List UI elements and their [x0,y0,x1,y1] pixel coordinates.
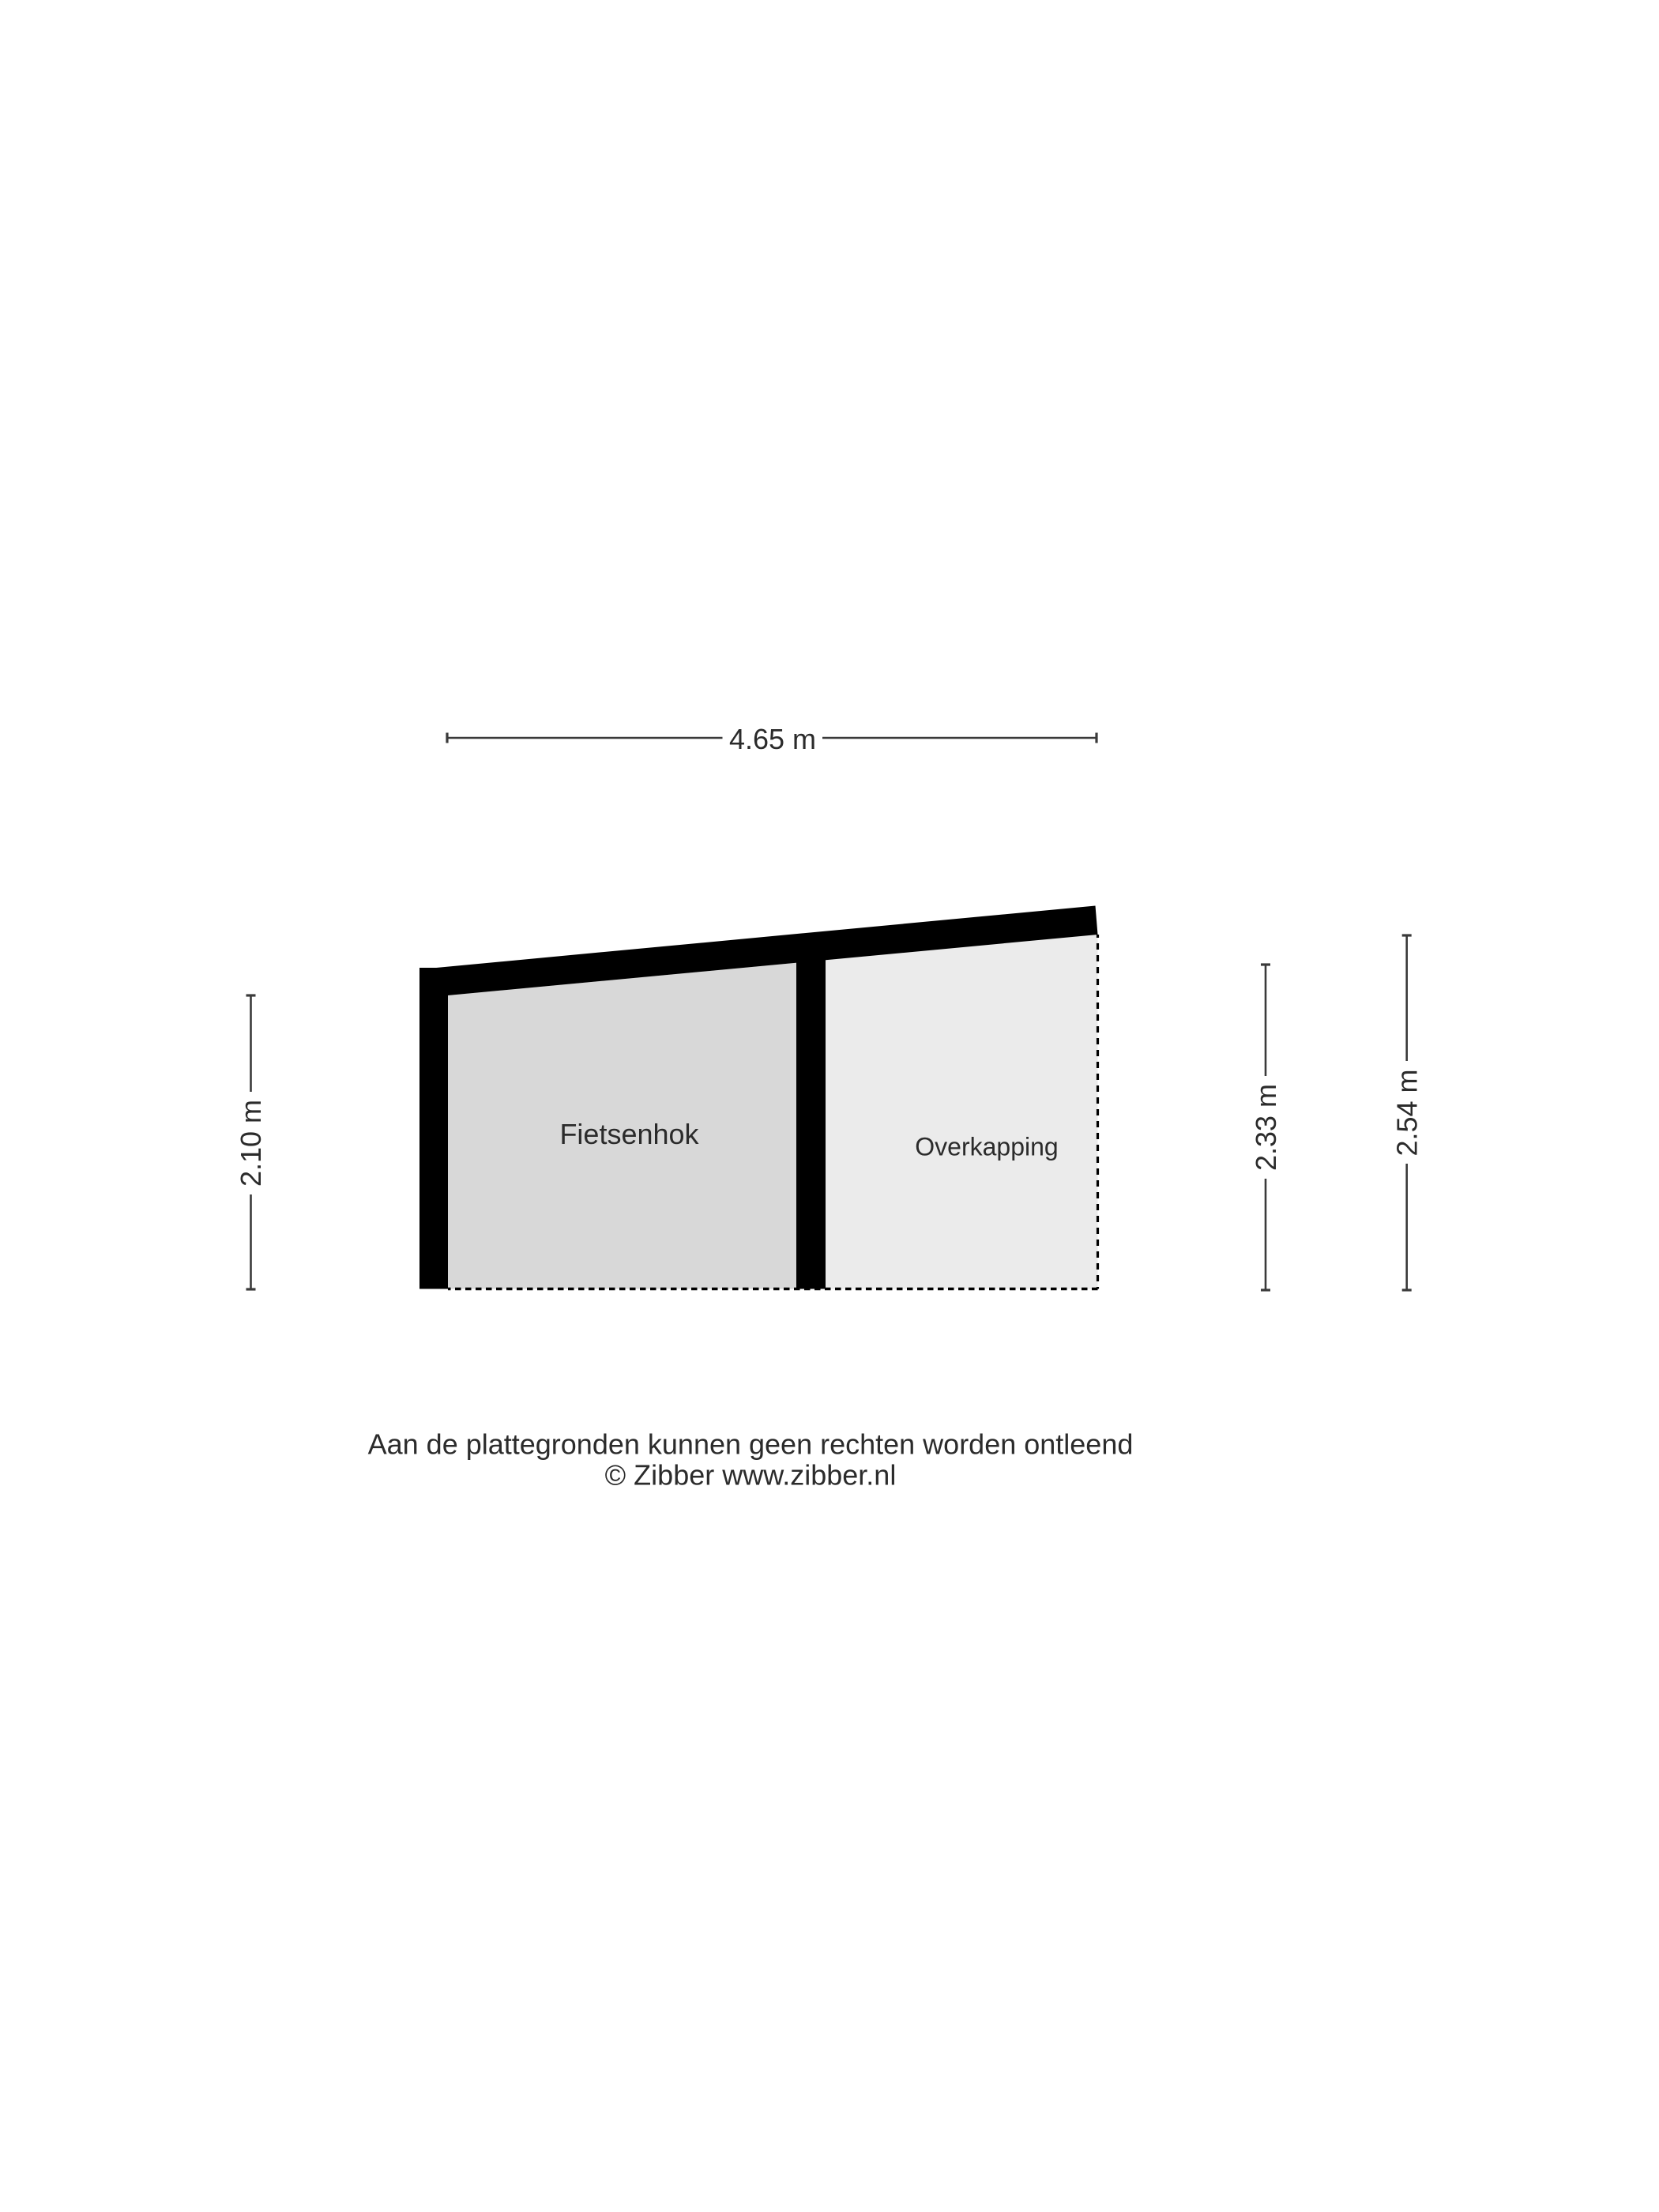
svg-text:Overkapping: Overkapping [915,1133,1058,1161]
svg-text:Aan de plattegronden kunnen ge: Aan de plattegronden kunnen geen rechten… [368,1428,1134,1461]
svg-text:2.10 m: 2.10 m [235,1100,267,1187]
svg-text:2.33 m: 2.33 m [1250,1084,1282,1171]
svg-text:© Zibber www.zibber.nl: © Zibber www.zibber.nl [605,1459,897,1492]
svg-text:Fietsenhok: Fietsenhok [559,1118,699,1150]
svg-text:4.65 m: 4.65 m [729,723,816,755]
svg-text:2.54 m: 2.54 m [1391,1069,1424,1156]
